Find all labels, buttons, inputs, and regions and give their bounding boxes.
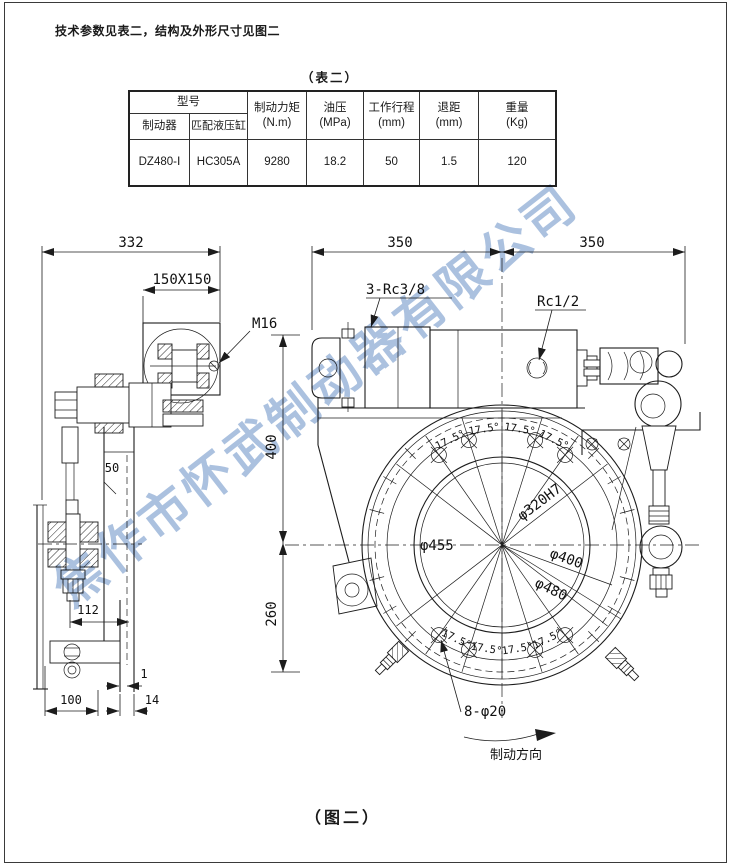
label-phi455: φ455 [420,538,454,554]
dim-150x150: 150X150 [152,272,211,288]
angle-label: 17.5° [503,421,536,438]
label-direction: 制动方向 [490,747,542,762]
dim-350-right: 350 [579,235,604,251]
label-3-rc38: 3-Rc3/8 [366,282,425,298]
label-rc12: Rc1/2 [537,294,579,310]
label-phi480: φ480 [532,575,569,604]
angle-label: 17.5° [439,627,473,652]
dim-100: 100 [60,693,82,707]
figure-two-drawing: 332 150X150 M16 [0,0,730,865]
angle-label: 17.5° [537,428,571,453]
dim-14: 14 [145,693,159,707]
label-m16: M16 [252,316,277,332]
dim-112: 112 [77,603,99,617]
direction-arrowhead [535,729,556,741]
drawing-sheet: 技术参数见表二，结构及外形尺寸见图二 （表二） 型号 制动器 匹配液压缸 制动力… [0,0,730,865]
angle-label: 17.5° [433,428,467,453]
side-view: 332 150X150 M16 [33,235,277,716]
corner-bolt-right [605,647,641,683]
angle-label: 17.5° [468,421,501,438]
brake-disc: 17.5° 17.5° 17.5° 17.5° 17.5° 17.5° 17.5… [285,258,702,718]
front-view: 350 350 3-Rc3/8 Rc1/2 [264,235,702,762]
dim-350-left: 350 [387,235,412,251]
dim-400: 400 [264,434,280,459]
dim-332: 332 [118,235,143,251]
dim-50: 50 [105,461,119,475]
dim-260: 260 [264,601,280,626]
label-8-phi20: 8-φ20 [464,704,506,720]
dim-1: 1 [140,667,147,681]
angle-label: 17.5° [531,627,565,652]
corner-bolt-left [373,641,409,677]
